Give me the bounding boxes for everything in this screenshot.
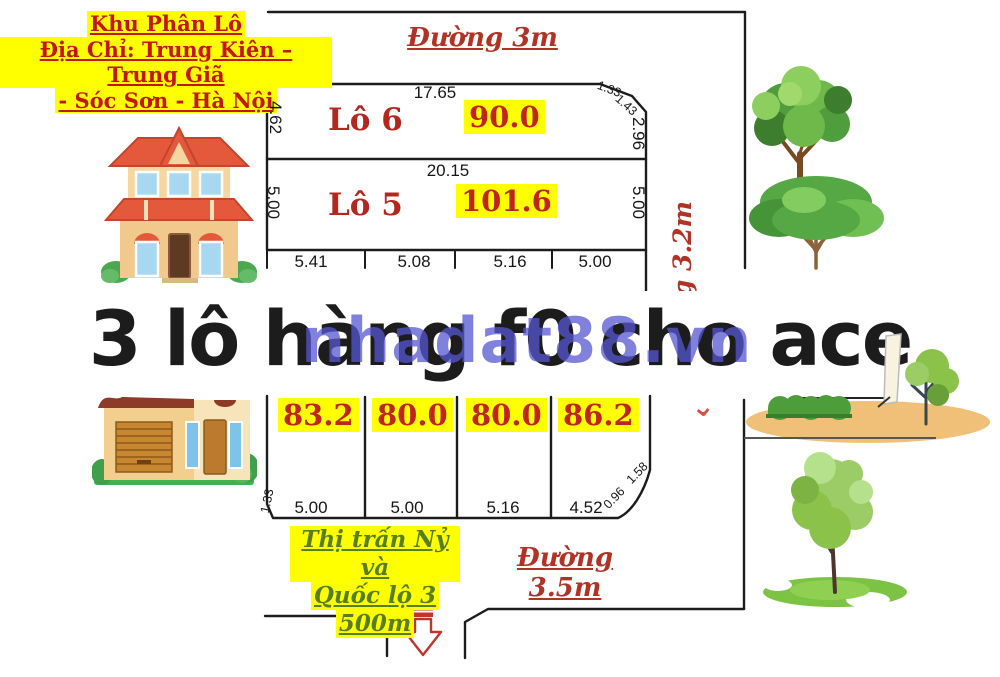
- road-top-label: Đường 3m: [400, 23, 565, 53]
- lot6-area: 90.0: [464, 100, 545, 134]
- dim-front-2: 5.00: [386, 498, 428, 518]
- dim-mid-width: 20.15: [415, 161, 481, 181]
- landmark-line-2: Quốc lộ 3: [311, 582, 439, 610]
- lower-lot1-area: 83.2: [278, 398, 359, 432]
- dim-lot6-left: 4.62: [265, 101, 285, 134]
- dim-rear-4: 5.00: [572, 252, 618, 272]
- lot5-name: Lô 5: [328, 187, 403, 223]
- landmark-line-1: Thị trấn Nỷ và: [290, 526, 460, 582]
- lower-lot4-area: 86.2: [558, 398, 639, 432]
- dim-rear-2: 5.08: [391, 252, 437, 272]
- header-line-2: Địa Chỉ: Trung Kiên – Trung Giã: [0, 37, 332, 88]
- lot6-name: Lô 6: [328, 102, 403, 138]
- dim-rear-1: 5.41: [288, 252, 334, 272]
- landmark-line-3: 500m: [336, 610, 414, 638]
- dim-rear-3: 5.16: [487, 252, 533, 272]
- red-check-mark: ⌄: [689, 389, 716, 424]
- dim-front-1: 5.00: [290, 498, 332, 518]
- dim-top-width: 17.65: [402, 83, 468, 103]
- dim-lot5-right: 5.00: [628, 186, 648, 219]
- header-line-3: - Sóc Sơn - Hà Nội: [55, 88, 276, 114]
- dim-lot5-left: 5.00: [263, 186, 283, 219]
- header-line-1: Khu Phân Lô: [87, 11, 245, 37]
- dim-front-3: 5.16: [482, 498, 524, 518]
- lot5-area: 101.6: [456, 184, 557, 218]
- watermark-site-text: nhadat88.vn: [301, 304, 752, 377]
- header-address-block: Khu Phân Lô Địa Chỉ: Trung Kiên – Trung …: [0, 11, 332, 113]
- plot-plan-image: Khu Phân Lô Địa Chỉ: Trung Kiên – Trung …: [0, 0, 1000, 677]
- landscape-clipart: [740, 328, 996, 446]
- lower-lot2-area: 80.0: [372, 398, 453, 432]
- landmark-note: Thị trấn Nỷ và Quốc lộ 3 500m: [290, 526, 460, 638]
- lower-lot3-area: 80.0: [466, 398, 547, 432]
- two-story-house-illustration: [100, 120, 258, 286]
- tall-tree-illustration: [760, 442, 910, 610]
- broad-tree-illustration: [746, 168, 886, 270]
- garage-house-illustration: [92, 386, 257, 494]
- road-bottom-label: Đường 3.5m: [490, 543, 640, 603]
- dim-lot6-right: 2.96: [628, 117, 648, 150]
